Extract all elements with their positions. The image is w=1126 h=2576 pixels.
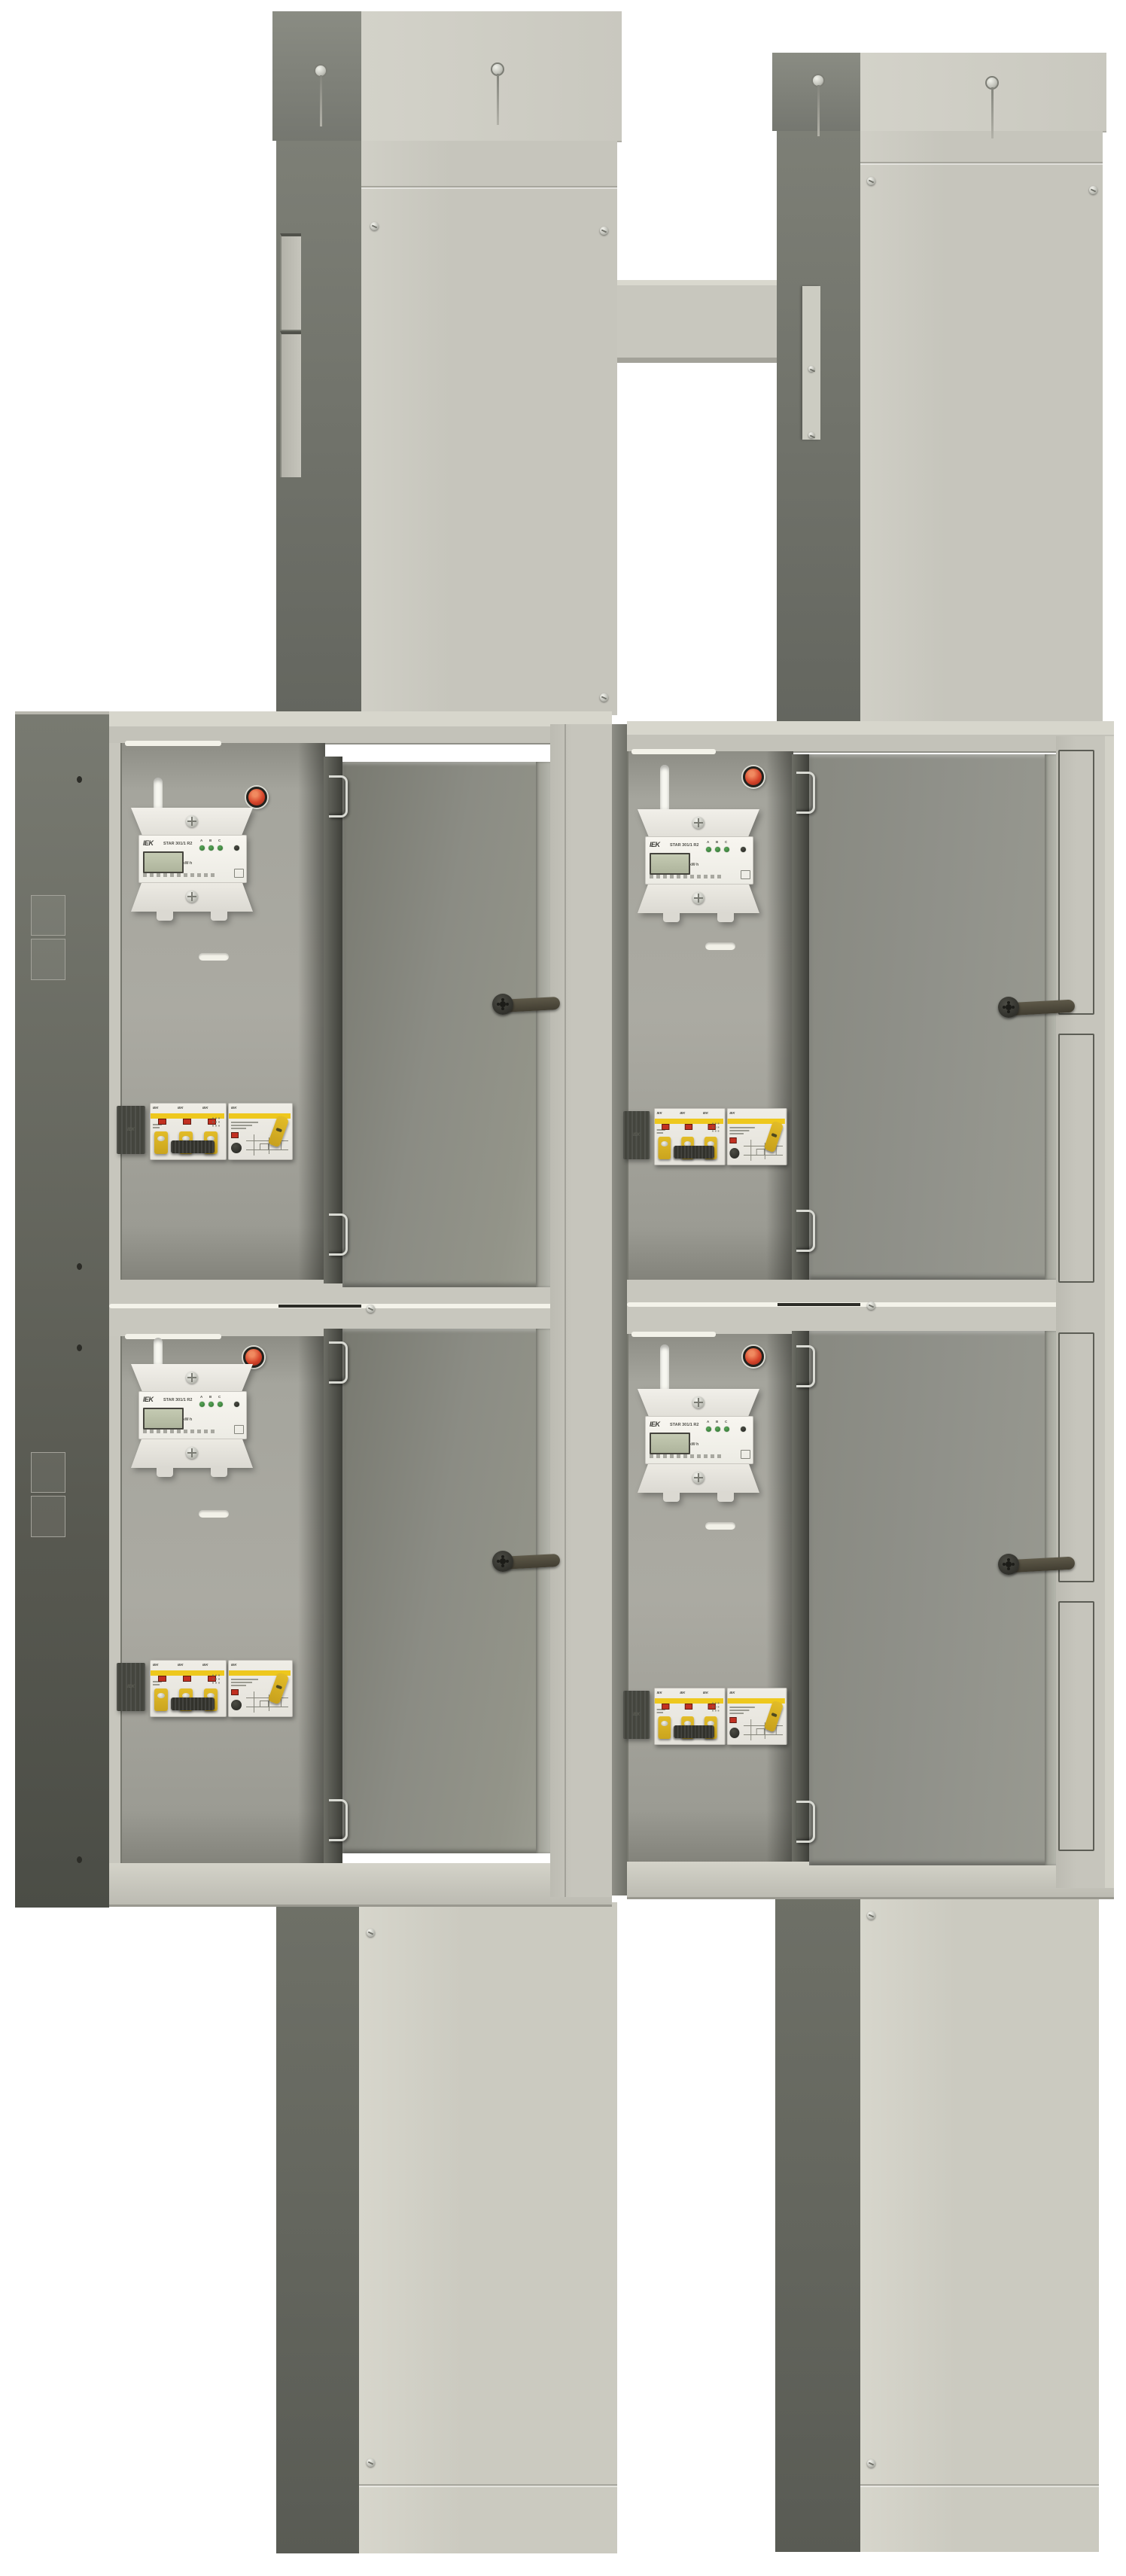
screw-icon xyxy=(600,693,608,702)
certification-mark xyxy=(234,869,244,878)
hinge-clip-icon xyxy=(796,1801,815,1843)
cabinet-door-1[interactable] xyxy=(342,762,550,1287)
top-cable-slot xyxy=(125,1334,221,1339)
meter-fine-print xyxy=(650,875,721,878)
screw-icon xyxy=(692,1396,705,1408)
toggle-tie-bar[interactable] xyxy=(674,1146,714,1159)
meter-din-tab xyxy=(717,1491,734,1502)
terminal-cover: IEK xyxy=(117,1663,145,1711)
breaker-brand: IEK xyxy=(703,1111,708,1115)
rcd-marking xyxy=(231,1679,258,1680)
rcd-marking xyxy=(729,1133,744,1134)
breaker-indicator-window xyxy=(662,1124,669,1130)
din-rail-breaker-row: IEK IEK IEK IEK IEK xyxy=(623,1107,786,1165)
divider-seam xyxy=(778,1303,860,1306)
rcd-test-button[interactable] xyxy=(231,1143,242,1153)
impulse-led-icon xyxy=(741,1427,746,1432)
meter-kwh-label: kW·h xyxy=(689,863,698,867)
breaker-brand: IEK xyxy=(153,1663,159,1667)
top-cable-slot xyxy=(631,749,716,754)
rcd-marking xyxy=(231,1685,246,1686)
din-rail-breaker-row: IEK IEK IEK IEK IEK xyxy=(117,1658,291,1717)
divider-seam xyxy=(278,1305,361,1308)
phase-label-b: B xyxy=(716,1420,718,1423)
top-right-column-front xyxy=(860,131,1103,723)
hinge-side-shadow xyxy=(766,1334,793,1862)
meter-din-tab xyxy=(157,910,173,921)
meter-phase-leds: A B C xyxy=(706,840,750,855)
rcd-test-button[interactable] xyxy=(729,1148,739,1159)
panel-seam xyxy=(359,2484,617,2486)
door-edge xyxy=(1045,1331,1056,1865)
meter-kwh-label: kW·h xyxy=(183,1417,192,1422)
rcd-indicator-window xyxy=(231,1689,239,1695)
screw-icon xyxy=(692,1472,705,1484)
mounting-hole xyxy=(77,1856,82,1863)
meter-din-tab xyxy=(717,912,734,922)
phase-led-icon xyxy=(724,847,729,852)
keyhole-screw-icon xyxy=(985,76,999,90)
cable-dash-slot xyxy=(705,1522,735,1530)
panel-seam xyxy=(361,186,617,187)
cable-dash-slot xyxy=(199,953,229,961)
column-bridge-duct xyxy=(617,280,777,363)
screw-icon xyxy=(186,815,198,827)
breaker-terminal-marks xyxy=(711,1701,720,1712)
energy-meter: IEK STAR 301/1 R2 kW·h A B C xyxy=(131,808,253,924)
screw-icon xyxy=(867,2459,875,2468)
right-door-2-hinge-column xyxy=(792,1331,809,1862)
meter-fine-print xyxy=(143,1430,215,1433)
phase-label-a: A xyxy=(707,1420,709,1423)
breaker-indicator-window xyxy=(685,1124,692,1130)
breaker-toggle[interactable] xyxy=(659,1716,671,1739)
phase-led-icon xyxy=(706,847,711,852)
door-latch-knob[interactable] xyxy=(492,1551,513,1572)
meter-cabinet-unit-3-interior: IEK STAR 301/1 R2 kW·h A B C IEK IEK IEK… xyxy=(120,1336,325,1863)
phase-label-a: A xyxy=(707,840,709,844)
screw-icon xyxy=(367,1305,375,1313)
rcd-brand: IEK xyxy=(231,1663,237,1667)
screw-icon xyxy=(867,177,875,185)
terminal-cover: IEK xyxy=(117,1106,145,1154)
door-edge xyxy=(1045,754,1056,1280)
side-gland-plate xyxy=(31,1452,65,1493)
meter-din-tab xyxy=(211,1466,227,1477)
breaker-terminal-marks xyxy=(212,1116,221,1127)
meter-face: IEK STAR 301/1 R2 kW·h A B C xyxy=(138,1391,247,1439)
breaker-toggle[interactable] xyxy=(154,1688,168,1711)
din-rail-breaker-row: IEK IEK IEK IEK IEK xyxy=(117,1101,291,1160)
phase-led-icon xyxy=(724,1427,729,1432)
blanking-panel-outline xyxy=(1058,1601,1094,1851)
breaker-indicator-window xyxy=(685,1704,692,1710)
meter-kwh-label: kW·h xyxy=(689,1442,698,1447)
meter-fine-print xyxy=(143,873,215,877)
hinge-side-shadow xyxy=(298,1336,325,1863)
hinge-clip-icon xyxy=(329,1213,348,1256)
breaker-brand: IEK xyxy=(657,1691,662,1694)
screw-icon xyxy=(367,1929,375,1937)
screw-icon xyxy=(1089,186,1097,194)
left-group-bottom-sill xyxy=(109,1863,612,1907)
meter-face: IEK STAR 301/1 R2 kW·h A B C xyxy=(645,1416,753,1464)
screw-icon xyxy=(692,817,705,829)
breaker-brand: IEK xyxy=(657,1111,662,1115)
meter-model-label: STAR 301/1 R2 xyxy=(670,843,698,848)
screw-icon xyxy=(867,1911,875,1920)
phase-led-icon xyxy=(208,1402,214,1407)
pilot-light-icon xyxy=(743,766,764,787)
meter-cabinet-unit-2-interior: IEK STAR 301/1 R2 kW·h A B C IEK IEK IEK… xyxy=(627,751,793,1280)
hinge-clip-icon xyxy=(796,1210,815,1252)
phase-label-b: B xyxy=(209,1395,212,1399)
breaker-indicator-window xyxy=(183,1119,191,1125)
meter-din-tab xyxy=(211,910,227,921)
breaker-marking xyxy=(657,1132,663,1134)
left-group-side-panel xyxy=(15,711,109,1908)
rcd-marking xyxy=(231,1128,246,1129)
terminal-cover: IEK xyxy=(623,1691,650,1739)
rcd-indicator-window xyxy=(231,1132,239,1138)
rcd-indicator-window xyxy=(729,1137,736,1143)
screw-icon xyxy=(186,1372,198,1384)
energy-meter: IEK STAR 301/1 R2 kW·h A B C xyxy=(638,1389,759,1505)
phase-label-a: A xyxy=(200,839,202,842)
phase-led-icon xyxy=(199,1402,205,1407)
top-cable-slot xyxy=(631,1332,716,1337)
breaker-brand: IEK xyxy=(153,1106,159,1110)
blanking-panel-outline xyxy=(1058,1332,1094,1582)
screw-icon xyxy=(600,227,608,235)
cabinet-door-2[interactable] xyxy=(809,754,1056,1280)
meter-face: IEK STAR 301/1 R2 kW·h A B C xyxy=(645,836,753,885)
meter-lcd-display xyxy=(650,1433,690,1454)
breaker-marking xyxy=(153,1684,160,1685)
hinge-clip-icon xyxy=(796,772,815,814)
meter-lcd-display xyxy=(650,853,690,875)
din-rail-breaker-row: IEK IEK IEK IEK IEK xyxy=(623,1686,786,1745)
impulse-led-icon xyxy=(741,847,746,852)
cabinet-door-4[interactable] xyxy=(809,1331,1056,1865)
meter-lcd-display xyxy=(143,1408,184,1430)
door-latch-knob[interactable] xyxy=(998,997,1019,1018)
screw-icon xyxy=(808,366,814,372)
meter-phase-leds: A B C xyxy=(706,1420,750,1435)
left-group-divider xyxy=(109,1280,612,1336)
certification-mark xyxy=(234,1425,244,1434)
pilot-light-icon xyxy=(743,1346,764,1367)
breaker-brand: IEK xyxy=(202,1663,208,1667)
meter-cabinet-unit-1-interior: IEK STAR 301/1 R2 kW·h A B C IEK IEK IEK… xyxy=(120,743,325,1280)
hinge-clip-icon xyxy=(329,775,348,818)
meter-model-label: STAR 301/1 R2 xyxy=(163,1398,192,1402)
terminal-cover: IEK xyxy=(623,1111,650,1159)
screw-icon xyxy=(370,222,379,230)
meter-din-tab xyxy=(157,1466,173,1477)
meter-brand-logo: IEK xyxy=(143,1396,154,1403)
mounting-hole xyxy=(77,1263,82,1270)
meter-face: IEK STAR 301/1 R2 kW·h A B C xyxy=(138,835,247,883)
rcd-marking xyxy=(729,1130,749,1131)
top-left-column-front xyxy=(361,141,617,715)
meter-model-label: STAR 301/1 R2 xyxy=(670,1423,698,1427)
screw-icon xyxy=(186,891,198,903)
screw-icon xyxy=(867,1302,875,1310)
screw-icon xyxy=(367,2459,375,2467)
phase-led-icon xyxy=(715,847,720,852)
cable-dash-slot xyxy=(199,1510,229,1518)
meter-brand-logo: IEK xyxy=(650,841,660,848)
blanking-panel-outline xyxy=(1058,1034,1094,1283)
rcd-marking xyxy=(729,1713,744,1714)
energy-meter: IEK STAR 301/1 R2 kW·h A B C xyxy=(638,809,759,925)
phase-led-icon xyxy=(208,845,214,851)
meter-phase-leds: A B C xyxy=(199,839,243,854)
meter-din-tab xyxy=(663,1491,680,1502)
panel-seam xyxy=(860,2484,1099,2486)
rcd-marking xyxy=(729,1707,754,1708)
impulse-led-icon xyxy=(234,1402,239,1407)
meter-brand-logo: IEK xyxy=(143,839,154,847)
rcd-marking xyxy=(729,1710,749,1711)
hinge-side-shadow xyxy=(298,743,325,1280)
rcd-marking xyxy=(231,1122,258,1123)
rcd-indicator-window xyxy=(729,1717,736,1723)
rcd-marking xyxy=(231,1682,252,1683)
breaker-terminal-marks xyxy=(711,1122,720,1132)
phase-label-c: C xyxy=(725,1420,727,1423)
breaker-brand: IEK xyxy=(703,1691,708,1694)
rcd-marking xyxy=(729,1127,754,1128)
cable-dash-slot xyxy=(705,942,735,950)
right-group-filler-panel xyxy=(1056,736,1114,1888)
meter-fine-print xyxy=(650,1454,721,1458)
electrical-riser-panel-scene: IEK STAR 301/1 R2 kW·h A B C IEK IEK IEK… xyxy=(0,0,1126,2576)
meter-din-tab xyxy=(663,912,680,922)
cabinet-door-3[interactable] xyxy=(342,1329,550,1853)
breaker-brand: IEK xyxy=(680,1111,685,1115)
right-group-top-face xyxy=(627,721,1114,735)
door-latch-knob[interactable] xyxy=(492,994,513,1015)
screw-icon xyxy=(692,892,705,904)
meter-brand-logo: IEK xyxy=(650,1420,660,1428)
hinge-clip-icon xyxy=(329,1341,348,1384)
phase-label-c: C xyxy=(725,840,727,844)
blanking-panel-outline xyxy=(1058,750,1094,1015)
rcd-test-button[interactable] xyxy=(729,1728,739,1738)
door-edge xyxy=(536,762,550,1287)
bottom-right-column-side xyxy=(775,1887,860,2552)
hinge-clip-icon xyxy=(329,1799,348,1841)
breaker-indicator-window xyxy=(158,1676,166,1682)
vent-slot-icon xyxy=(280,233,301,330)
breaker-brand: IEK xyxy=(202,1106,208,1110)
breaker-indicator-window xyxy=(158,1119,166,1125)
phase-label-c: C xyxy=(218,1395,221,1399)
phase-label-a: A xyxy=(200,1395,202,1399)
mounting-hole xyxy=(77,1344,82,1351)
rcd-brand: IEK xyxy=(729,1691,735,1694)
keyhole-screw-icon xyxy=(811,74,825,87)
left-group-top-face xyxy=(109,711,612,726)
phase-led-icon xyxy=(218,1402,223,1407)
right-group-bottom-sill xyxy=(627,1862,1114,1899)
rcd-brand: IEK xyxy=(231,1106,237,1110)
breaker-brand: IEK xyxy=(178,1106,184,1110)
phase-led-icon xyxy=(706,1427,711,1432)
breaker-indicator-window xyxy=(183,1676,191,1682)
hinge-side-shadow xyxy=(766,751,793,1280)
breaker-indicator-window xyxy=(662,1704,669,1710)
bottom-left-column-front xyxy=(359,1902,617,2553)
left-door-1-hinge-column xyxy=(324,757,342,1283)
phase-led-icon xyxy=(218,845,223,851)
toggle-tie-bar[interactable] xyxy=(674,1725,714,1738)
breaker-toggle[interactable] xyxy=(659,1137,671,1159)
toggle-tie-bar[interactable] xyxy=(171,1140,215,1153)
screw-icon xyxy=(808,432,814,438)
breaker-marking xyxy=(153,1127,160,1128)
rcd-brand: IEK xyxy=(729,1111,735,1115)
phase-label-b: B xyxy=(209,839,212,842)
hinge-clip-icon xyxy=(796,1345,815,1387)
bridge-flange xyxy=(802,286,820,440)
energy-meter: IEK STAR 301/1 R2 kW·h A B C xyxy=(131,1364,253,1480)
meter-lcd-display xyxy=(143,851,184,873)
top-right-column-cap-front xyxy=(860,53,1106,132)
side-gland-plate xyxy=(31,1496,65,1537)
breaker-toggle[interactable] xyxy=(154,1131,168,1154)
filler-edge-highlight xyxy=(1105,736,1114,1888)
rcd-test-button[interactable] xyxy=(231,1700,242,1710)
side-gland-plate xyxy=(31,939,65,980)
door-edge xyxy=(536,1329,550,1853)
phase-label-b: B xyxy=(716,840,718,844)
filler-seam xyxy=(565,724,566,1897)
bottom-right-column-front xyxy=(860,1887,1099,2552)
impulse-led-icon xyxy=(234,845,239,851)
rcd-marking xyxy=(231,1125,252,1126)
certification-mark xyxy=(741,870,750,879)
keyhole-screw-icon xyxy=(314,64,327,78)
phase-led-icon xyxy=(199,845,205,851)
meter-cabinet-unit-4-interior: IEK STAR 301/1 R2 kW·h A B C IEK IEK IEK… xyxy=(627,1334,793,1862)
left-group-filler-panel xyxy=(550,724,612,1897)
pilot-light-icon xyxy=(246,787,267,808)
certification-mark xyxy=(741,1450,750,1459)
right-door-1-hinge-column xyxy=(792,754,809,1280)
top-right-column-cap-side xyxy=(772,53,860,131)
meter-phase-leds: A B C xyxy=(199,1395,243,1410)
top-left-column-cap-front xyxy=(361,11,622,142)
left-door-2-hinge-column xyxy=(324,1329,342,1863)
bottom-left-column-side xyxy=(276,1902,359,2553)
breaker-terminal-marks xyxy=(212,1673,221,1684)
phase-label-c: C xyxy=(218,839,221,842)
phase-led-icon xyxy=(715,1427,720,1432)
breaker-marking xyxy=(657,1712,663,1713)
vent-slot-icon xyxy=(280,331,301,477)
breaker-brand: IEK xyxy=(178,1663,184,1667)
meter-model-label: STAR 301/1 R2 xyxy=(163,842,192,846)
keyhole-screw-icon xyxy=(491,62,504,76)
meter-kwh-label: kW·h xyxy=(183,861,192,866)
door-latch-knob[interactable] xyxy=(998,1554,1019,1575)
breaker-brand: IEK xyxy=(680,1691,685,1694)
screw-icon xyxy=(186,1447,198,1459)
top-cable-slot xyxy=(125,741,221,746)
mounting-hole xyxy=(77,776,82,783)
toggle-tie-bar[interactable] xyxy=(171,1698,215,1710)
side-gland-plate xyxy=(31,895,65,936)
panel-seam xyxy=(860,162,1103,163)
